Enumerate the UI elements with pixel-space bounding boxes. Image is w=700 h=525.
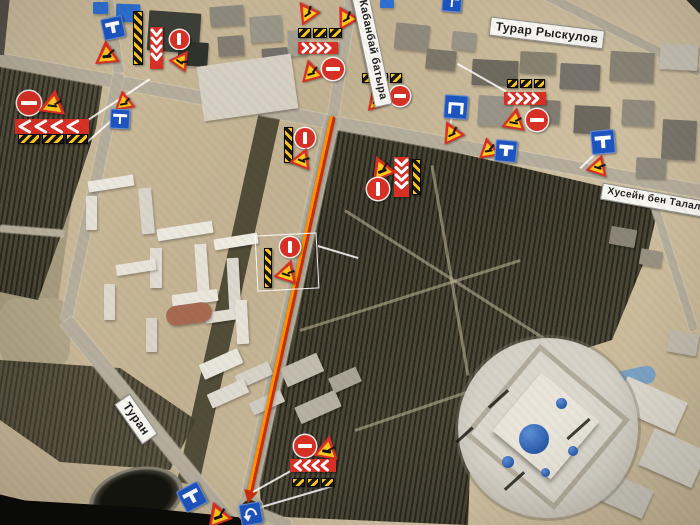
building [194,244,210,297]
building [380,0,394,8]
hazard-stripe-board [507,79,545,88]
street-label: Кабанбай батыра [351,0,392,108]
no-entry-sign [322,58,344,80]
road-work-sign [290,0,321,25]
building [659,43,698,71]
hazard-stripe-board [298,28,342,38]
road-work-sign [296,56,324,82]
building [104,284,115,320]
hazard-stripe-board [18,134,88,144]
building [666,330,699,357]
mosque-small-dome [502,456,514,468]
photo-edge [0,0,16,55]
chevron-direction-board [394,157,409,197]
building [138,188,155,235]
building [146,318,157,352]
building [519,51,556,75]
building [451,31,477,51]
chevron-direction-board [298,42,338,54]
no-entry-sign [367,178,389,200]
road-work-sign [38,87,68,115]
dead-end-sign [494,139,518,163]
chevron-direction-board [150,27,163,69]
park-area [0,298,70,368]
building [621,99,654,127]
road-work-sign [111,88,135,110]
dead-end-sign [441,0,463,13]
dead-end-sign [100,15,126,41]
building [638,428,700,488]
building [249,15,283,43]
photo-edge [684,0,700,14]
hazard-stripe-board [264,248,272,288]
road-work-sign [289,144,317,171]
building [209,5,244,27]
dead-end-sign [109,108,130,129]
road-work-sign [93,38,120,63]
no-entry-sign [390,86,410,106]
hazard-stripe-board [133,11,143,65]
u-turn-sign [238,501,263,525]
chevron-direction-board [15,119,89,134]
no-entry-sign [17,91,41,115]
road-work-sign [501,105,528,131]
building [609,51,655,83]
mosque-small-dome [556,398,567,409]
chevron-direction-board [504,92,546,105]
mosque-small-dome [568,446,578,456]
building [235,300,249,345]
hazard-stripe-board [412,159,421,195]
building [217,35,244,57]
road-work-sign [313,433,342,460]
aerial-map: Кабанбай батыраТурар РыскуловХусейн бен … [0,0,700,525]
no-entry-sign [526,109,548,131]
building [86,196,97,230]
building [156,221,213,242]
mosque-small-dome [541,468,550,477]
building [635,157,666,179]
mosque-main-dome [519,424,549,454]
building [425,48,457,71]
building [93,2,108,14]
building [661,119,697,161]
building [559,63,600,91]
no-entry-sign [280,237,300,257]
chevron-direction-board [290,459,336,472]
hazard-stripe-board [292,478,334,487]
building [394,22,431,51]
